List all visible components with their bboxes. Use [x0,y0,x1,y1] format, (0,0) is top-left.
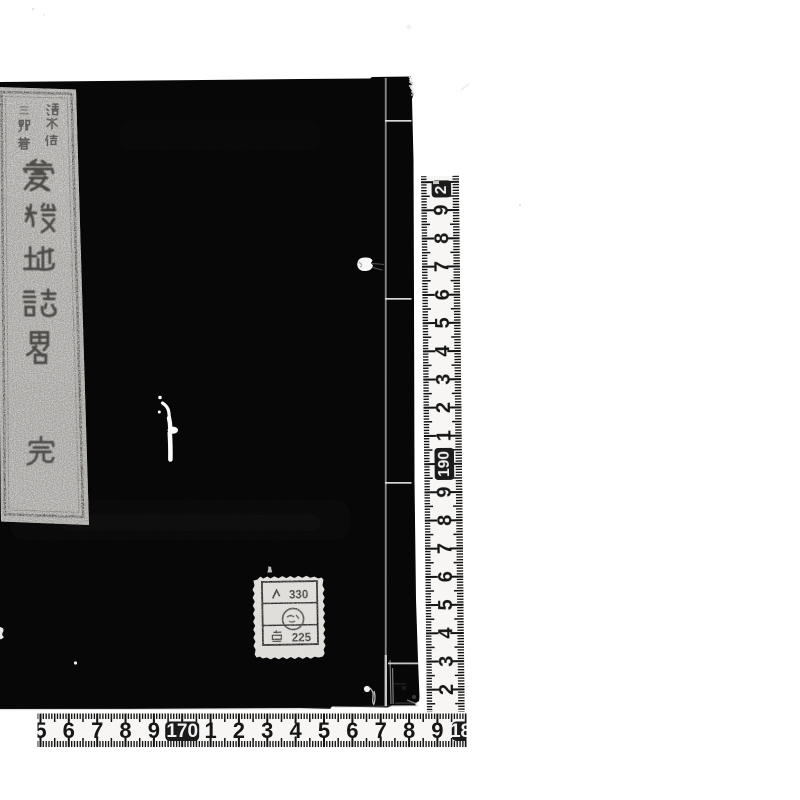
svg-text:4: 4 [432,345,454,357]
svg-text:7: 7 [375,718,387,743]
svg-text:3: 3 [436,656,458,667]
svg-text:4: 4 [289,718,302,743]
svg-text:1: 1 [204,718,216,743]
svg-text:6: 6 [346,718,358,743]
svg-text:9: 9 [431,718,443,743]
svg-text:8: 8 [119,718,131,743]
svg-text:5: 5 [318,718,330,743]
svg-text:3: 3 [433,374,455,385]
svg-text:5: 5 [432,317,454,328]
svg-text:2: 2 [433,402,455,413]
svg-text:8: 8 [434,515,456,526]
svg-text:6: 6 [435,571,457,582]
svg-text:8: 8 [431,233,453,244]
svg-text:7: 7 [431,261,453,272]
svg-text:7: 7 [434,543,456,554]
svg-text:1: 1 [433,430,455,441]
svg-text:2: 2 [436,684,458,695]
svg-text:9: 9 [434,486,456,497]
svg-text:9: 9 [148,718,160,743]
svg-text:9: 9 [431,205,453,216]
svg-text:2: 2 [233,718,245,743]
svg-text:4: 4 [435,627,457,639]
svg-text:8: 8 [403,718,415,743]
svg-text:170: 170 [166,721,198,742]
svg-text:3: 3 [261,718,273,743]
svg-text:7: 7 [91,718,103,743]
svg-text:6: 6 [432,289,454,300]
svg-text:190: 190 [436,451,453,477]
svg-text:5: 5 [435,599,457,610]
svg-text:2: 2 [433,186,450,195]
svg-text:6: 6 [63,718,75,743]
